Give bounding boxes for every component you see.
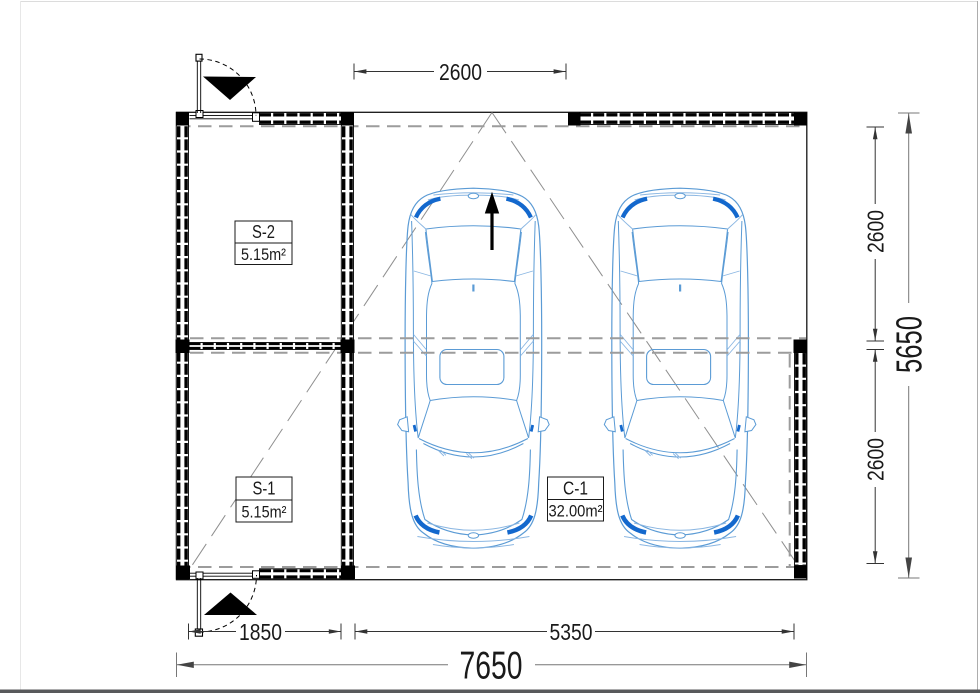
svg-text:32.00m²: 32.00m² [549, 503, 603, 521]
svg-text:1850: 1850 [239, 619, 282, 645]
svg-text:5.15m²: 5.15m² [241, 246, 286, 264]
svg-text:C-1: C-1 [563, 479, 588, 499]
svg-text:S-2: S-2 [252, 222, 275, 242]
svg-text:2600: 2600 [439, 59, 482, 85]
svg-text:7650: 7650 [460, 644, 523, 687]
svg-text:5650: 5650 [889, 316, 930, 373]
svg-text:2600: 2600 [863, 438, 889, 481]
svg-text:S-1: S-1 [253, 479, 276, 499]
svg-text:5350: 5350 [550, 619, 593, 645]
svg-text:5.15m²: 5.15m² [242, 504, 287, 522]
svg-text:2600: 2600 [863, 210, 889, 253]
